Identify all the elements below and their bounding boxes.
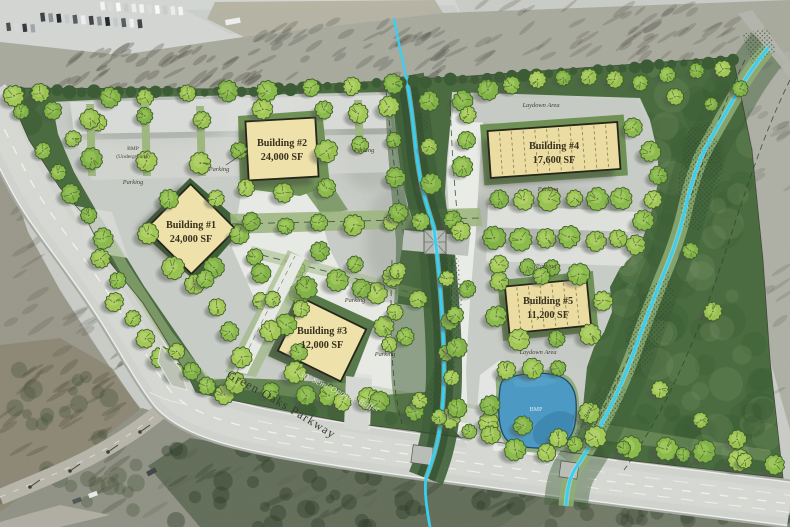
svg-text:Parking: Parking [353,147,375,154]
svg-text:Building #3: Building #3 [297,326,347,337]
svg-text:17,600 SF: 17,600 SF [533,155,575,166]
svg-text:Laydown Area: Laydown Area [521,102,559,109]
svg-text:Parking: Parking [374,351,396,358]
svg-text:24,000 SF: 24,000 SF [261,152,303,163]
svg-text:Parking: Parking [208,166,230,173]
svg-text:Parking: Parking [122,179,144,186]
svg-text:11,200 SF: 11,200 SF [527,310,569,321]
svg-text:Laydown Area: Laydown Area [518,349,556,356]
svg-text:BMP: BMP [530,407,543,413]
svg-text:(Underground): (Underground) [116,153,150,160]
svg-text:Parking: Parking [344,297,366,304]
svg-text:Parking: Parking [537,186,559,193]
svg-text:Building #5: Building #5 [523,296,573,307]
svg-text:Parking: Parking [535,263,557,270]
svg-text:24,000 SF: 24,000 SF [170,234,212,245]
svg-text:Building #4: Building #4 [529,141,579,152]
svg-text:Building #1: Building #1 [166,220,216,231]
svg-text:Building #2: Building #2 [257,138,307,149]
svg-text:BMP: BMP [127,146,139,152]
svg-text:12,000 SF: 12,000 SF [301,340,343,351]
